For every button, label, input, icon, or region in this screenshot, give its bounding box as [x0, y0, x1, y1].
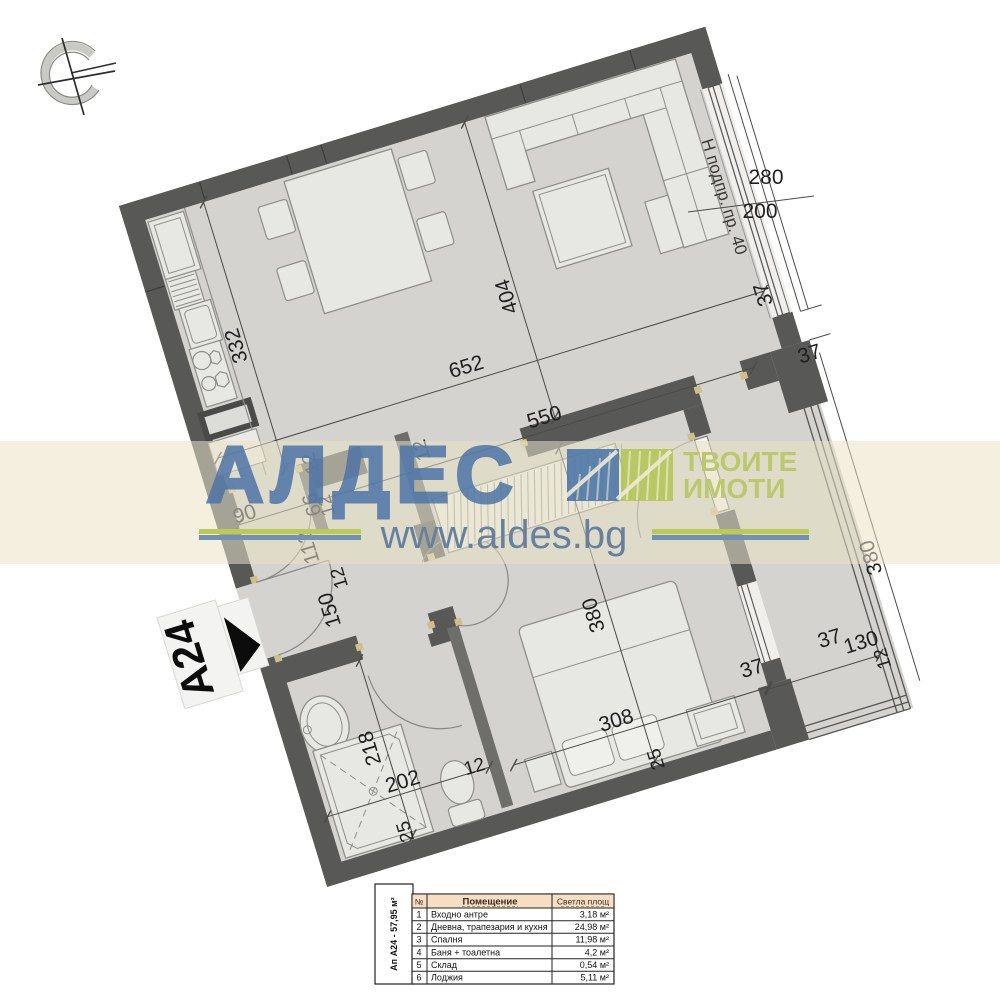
svg-text:2: 2 — [416, 922, 421, 932]
svg-text:5,11 м²: 5,11 м² — [580, 973, 609, 983]
svg-text:Баня + тоалетна: Баня + тоалетна — [431, 947, 500, 957]
svg-text:Светла площ: Светла площ — [557, 897, 609, 907]
svg-text:www.aldes.bg: www.aldes.bg — [380, 513, 628, 557]
svg-text:5: 5 — [416, 960, 421, 970]
svg-text:280: 280 — [748, 166, 783, 189]
svg-text:АЛДЕС: АЛДЕС — [206, 430, 519, 519]
svg-text:Лоджия: Лоджия — [431, 973, 463, 983]
svg-text:№: № — [415, 898, 424, 907]
svg-text:0,54 м²: 0,54 м² — [580, 960, 609, 970]
svg-text:24,98 м²: 24,98 м² — [575, 922, 609, 932]
svg-text:4,2 м²: 4,2 м² — [585, 947, 609, 957]
svg-text:Ап А24 - 57,95 м²: Ап А24 - 57,95 м² — [389, 897, 399, 971]
svg-text:3: 3 — [416, 935, 421, 945]
svg-text:200: 200 — [742, 200, 777, 223]
svg-text:Склад: Склад — [431, 960, 458, 970]
svg-text:Спалня: Спалня — [431, 935, 463, 945]
svg-text:3,18 м²: 3,18 м² — [580, 909, 609, 919]
svg-text:4: 4 — [416, 947, 421, 957]
svg-text:Дневна, трапезария и кухня: Дневна, трапезария и кухня — [431, 922, 548, 932]
svg-text:11,98 м²: 11,98 м² — [575, 935, 609, 945]
svg-text:Входно антре: Входно антре — [431, 909, 488, 919]
svg-text:1: 1 — [416, 909, 421, 919]
svg-text:6: 6 — [416, 973, 421, 983]
svg-text:ИМОТИ: ИМОТИ — [683, 473, 785, 504]
svg-text:Помещение: Помещение — [463, 897, 518, 908]
